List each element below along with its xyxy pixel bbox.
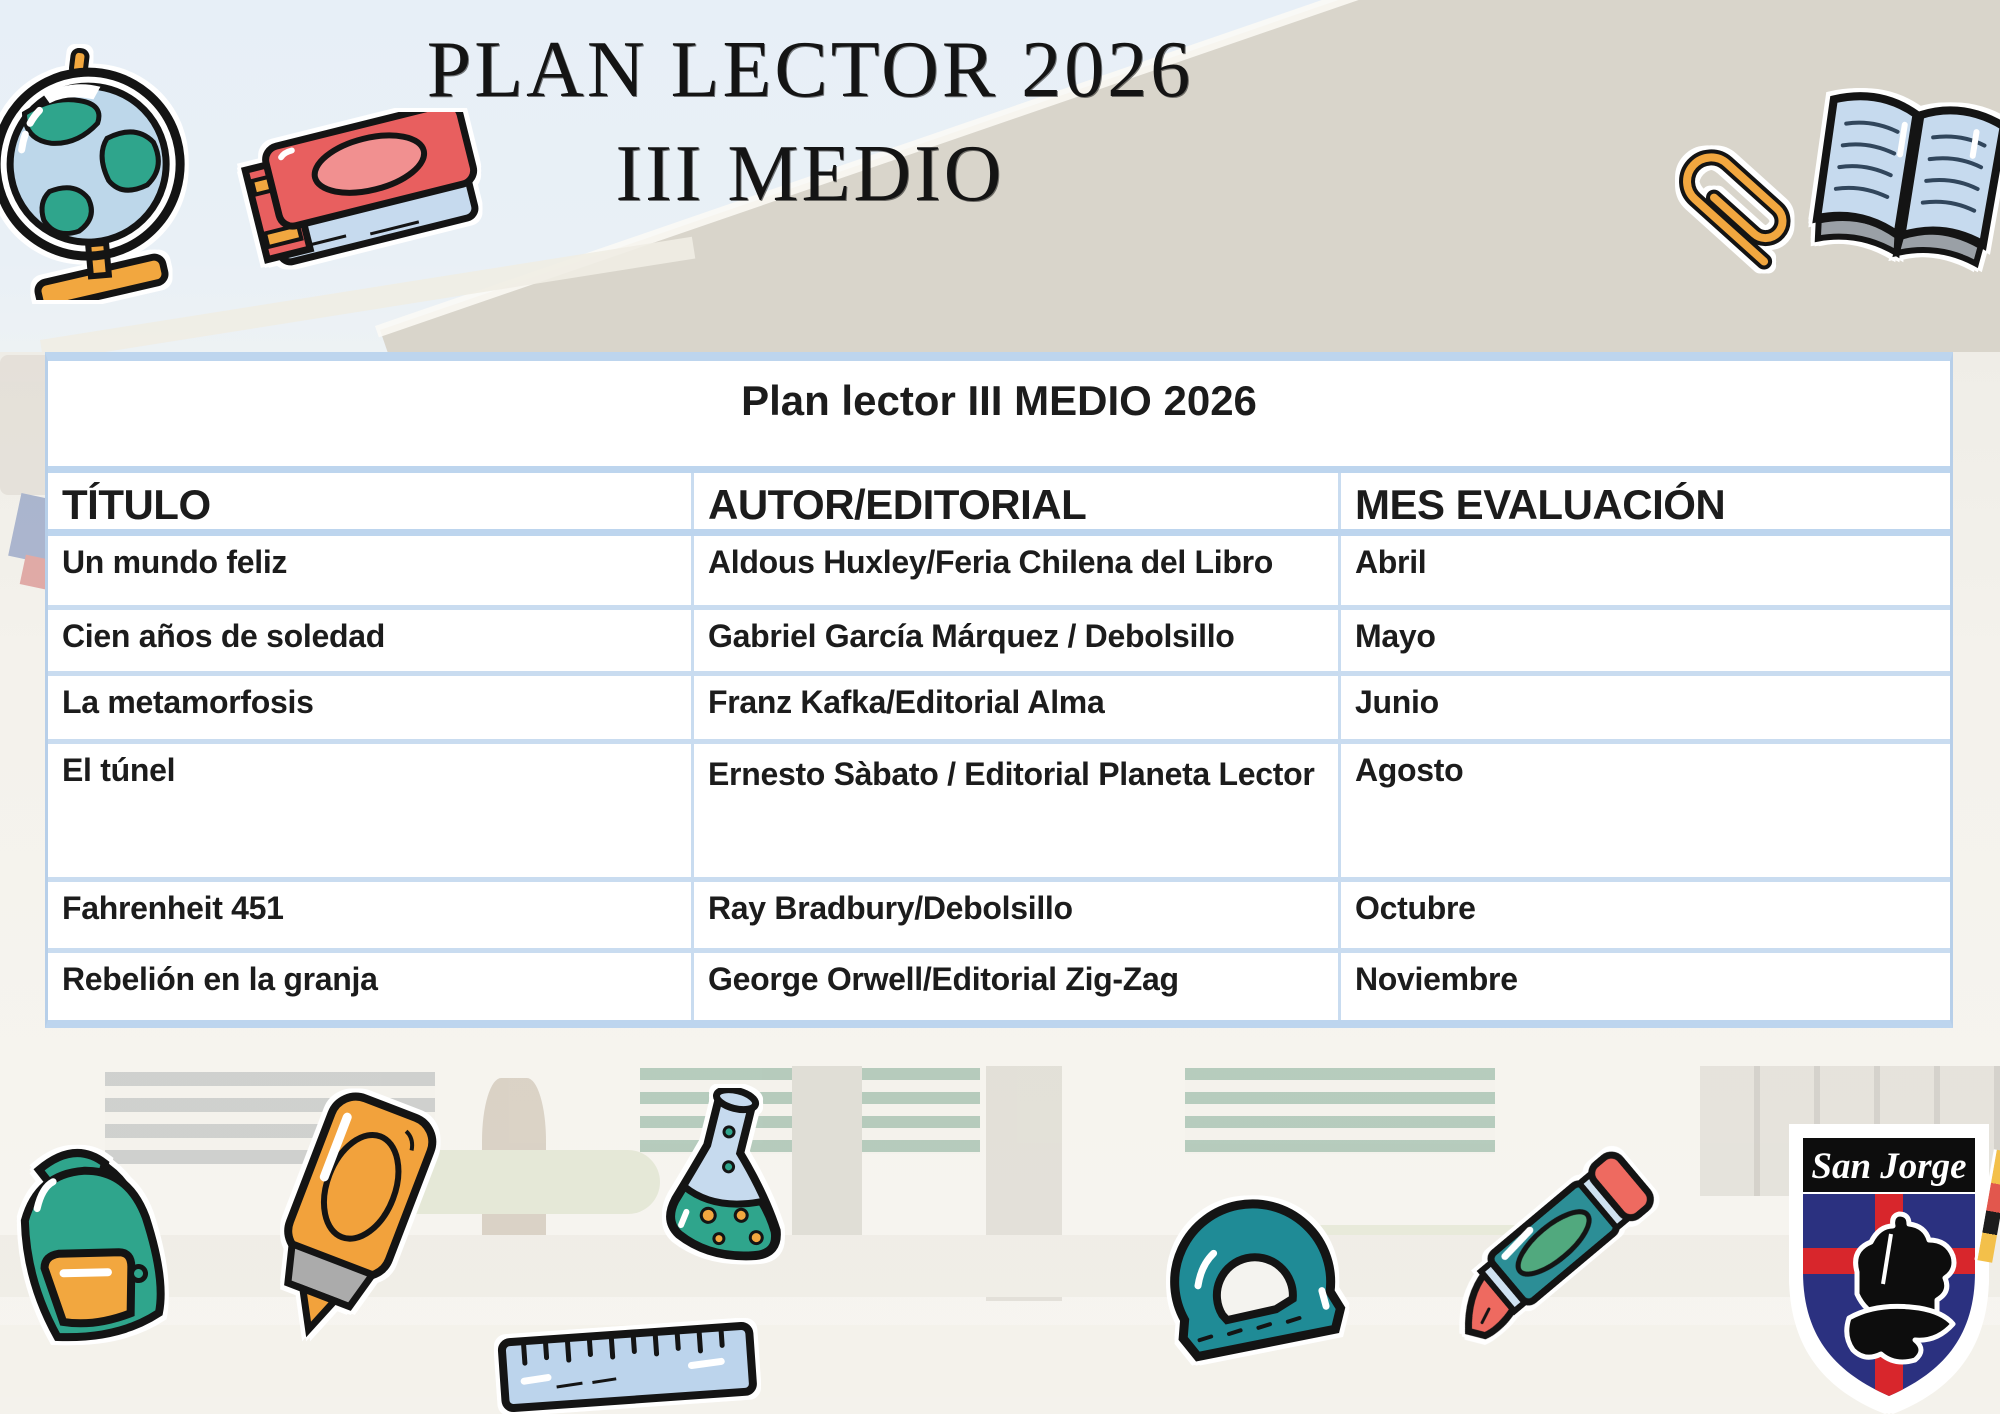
flask-icon — [636, 1088, 811, 1283]
table-row: La metamorfosis Franz Kafka/Editorial Al… — [48, 676, 1950, 744]
table-header-row: TÍTULO AUTOR/EDITORIAL MES EVALUACIÓN — [48, 473, 1950, 536]
cell-mes: Agosto — [1338, 744, 1950, 877]
open-book-icon — [1808, 86, 2000, 276]
cell-autor: Ray Bradbury/Debolsillo — [691, 882, 1338, 948]
cell-titulo: Rebelión en la granja — [48, 953, 691, 1020]
cell-mes: Octubre — [1338, 882, 1950, 948]
paperclip-icon — [1652, 128, 1812, 278]
table-row: Cien años de soledad Gabriel García Márq… — [48, 610, 1950, 676]
table-title-row: Plan lector III MEDIO 2026 — [48, 361, 1950, 473]
globe-icon — [0, 48, 190, 300]
ruler-icon — [495, 1308, 760, 1414]
cell-autor: George Orwell/Editorial Zig-Zag — [691, 953, 1338, 1020]
protractor-icon — [1152, 1182, 1357, 1382]
cell-autor: Aldous Huxley/Feria Chilena del Libro — [691, 536, 1338, 605]
table-row: Fahrenheit 451 Ray Bradbury/Debolsillo O… — [48, 882, 1950, 953]
cell-titulo: La metamorfosis — [48, 676, 691, 739]
col-header-autor-editorial: AUTOR/EDITORIAL — [691, 473, 1338, 529]
cell-mes: Noviembre — [1338, 953, 1950, 1020]
table-title: Plan lector III MEDIO 2026 — [741, 377, 1257, 425]
cell-mes: Junio — [1338, 676, 1950, 739]
reading-plan-table: Plan lector III MEDIO 2026 TÍTULO AUTOR/… — [45, 352, 1953, 1028]
cell-titulo: Cien años de soledad — [48, 610, 691, 671]
page-title-line1: PLAN LECTOR 2026 — [60, 18, 1560, 122]
cell-autor: Gabriel García Márquez / Debolsillo — [691, 610, 1338, 671]
cell-titulo: Fahrenheit 451 — [48, 882, 691, 948]
highlighter-icon — [252, 1092, 442, 1350]
cell-titulo: Un mundo feliz — [48, 536, 691, 605]
flyer-page: PLAN LECTOR 2026 III MEDIO — [0, 0, 2000, 1414]
table-row: Rebelión en la granja George Orwell/Edit… — [48, 953, 1950, 1020]
table-row: El túnel Ernesto Sàbato / Editorial Plan… — [48, 744, 1950, 882]
cell-mes: Mayo — [1338, 610, 1950, 671]
table-row: Un mundo feliz Aldous Huxley/Feria Chile… — [48, 536, 1950, 610]
cell-titulo: El túnel — [48, 744, 691, 877]
school-crest: San Jorge — [1787, 1122, 1991, 1414]
red-book-icon — [240, 112, 490, 272]
cell-autor: Franz Kafka/Editorial Alma — [691, 676, 1338, 739]
cell-autor: Ernesto Sàbato / Editorial Planeta Lecto… — [708, 740, 1328, 809]
col-header-mes-evaluacion: MES EVALUACIÓN — [1338, 473, 1950, 529]
crest-school-name: San Jorge — [1811, 1146, 1966, 1187]
backpack-icon — [0, 1140, 190, 1355]
col-header-titulo: TÍTULO — [48, 473, 691, 529]
cell-mes: Abril — [1338, 536, 1950, 605]
